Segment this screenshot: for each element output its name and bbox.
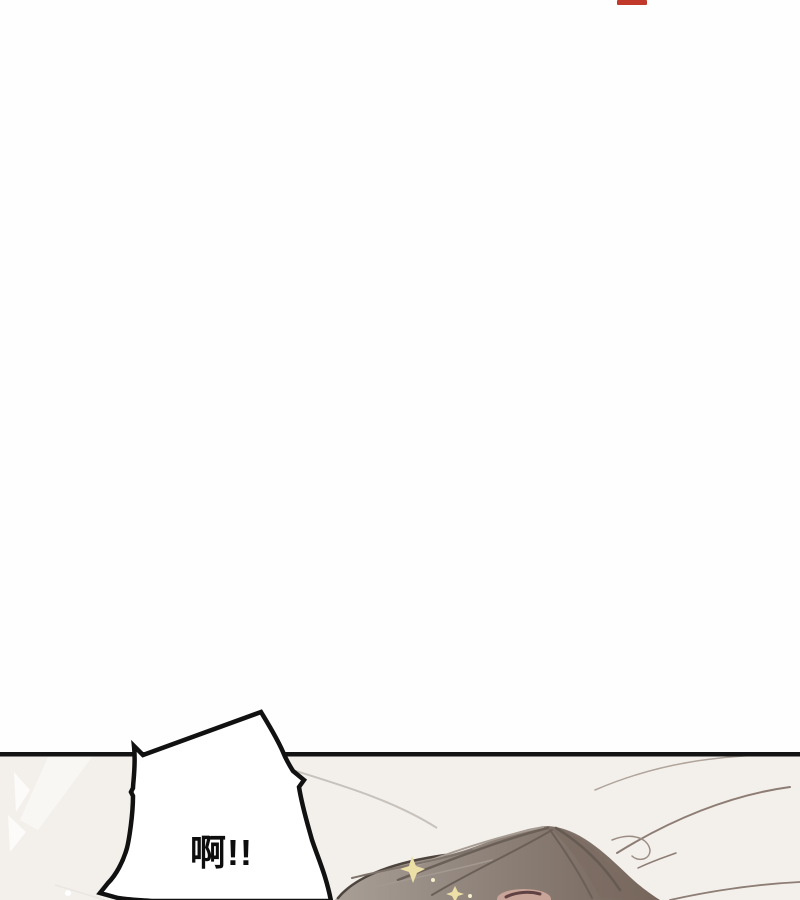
- panel-border-line: [0, 752, 800, 757]
- red-sfx-fragment: [617, 0, 647, 5]
- speech-bubble-text: 啊!!: [190, 831, 280, 877]
- bottom-panel-illustration: [0, 700, 800, 900]
- manga-page: 啊!!: [0, 0, 800, 900]
